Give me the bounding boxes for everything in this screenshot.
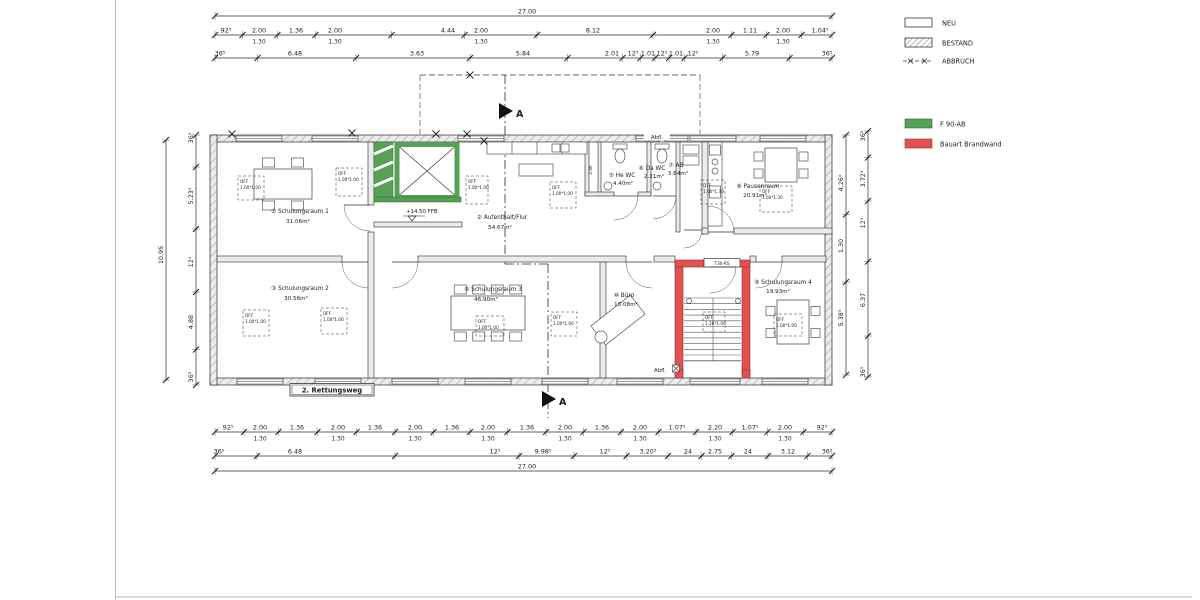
dim-label: 1.36 bbox=[445, 424, 459, 432]
table-with-chairs bbox=[451, 285, 525, 341]
dim-label: 4.44 bbox=[441, 27, 455, 35]
dim-label: 6.48 bbox=[288, 448, 302, 456]
legend-brandwand-label: Bauart Brandwand bbox=[940, 141, 1002, 149]
dim-label: 27.00 bbox=[518, 463, 536, 471]
legend-abbruch-label: ABBRUCH bbox=[942, 58, 975, 66]
legend-neu-swatch bbox=[905, 18, 932, 27]
dim-label: 2.00 bbox=[706, 27, 720, 35]
legend-abbruch-swatch bbox=[903, 59, 933, 64]
dim-label: 36⁵ bbox=[859, 366, 867, 377]
dim-label: 36⁵ bbox=[822, 50, 833, 58]
room-label-pausenraum: ⑧ Pausenraum bbox=[736, 183, 779, 190]
section-label-bottom: A bbox=[559, 397, 567, 408]
dim-label: 2.00 bbox=[558, 424, 572, 432]
dim-label: 1.11 bbox=[743, 27, 757, 35]
dim-label: 36⁵ bbox=[859, 130, 867, 141]
fire-door-label: T30-RS bbox=[714, 261, 730, 266]
off-marker-label: OFF bbox=[323, 311, 332, 316]
rettungsweg-label: 2. Rettungsweg bbox=[302, 387, 362, 395]
off-marker-size: 1.26*1.00 bbox=[705, 321, 726, 326]
dim-label: 2.00 bbox=[474, 27, 488, 35]
dim-label: 1.30 bbox=[837, 239, 845, 253]
room-area-pausenraum: 20.91m² bbox=[743, 192, 767, 199]
dim-chain-right-col1: 4.26⁵1.305.38⁵ bbox=[837, 132, 850, 378]
legend-f90-label: F 90-AB bbox=[940, 121, 966, 129]
room-label-aufenthalt: ② Aufenthalt/Flur bbox=[477, 214, 528, 221]
dim-chain-left-col1: 10.95 bbox=[157, 137, 170, 383]
dim-label: 10.95 bbox=[157, 246, 165, 264]
dim-label: 92⁵ bbox=[223, 424, 234, 432]
off-marker-size: 1.00*1.00 bbox=[245, 319, 266, 324]
off-marker-size: 1.00*1.00 bbox=[468, 185, 489, 190]
vorraum-dim: 2.06 bbox=[588, 165, 593, 175]
dim-label: 2.01 bbox=[605, 50, 619, 58]
dim-label: 5.38⁵ bbox=[837, 309, 845, 326]
off-marker-label: OFF bbox=[552, 185, 561, 190]
level-label: +14.50 FFB bbox=[406, 209, 438, 215]
room-area-schulungsraum4: 19.93m² bbox=[766, 288, 790, 295]
elevator-shaft bbox=[374, 142, 461, 202]
floor-plan-svg: A A bbox=[0, 0, 1200, 600]
dim-label: 92⁵ bbox=[221, 27, 232, 35]
section-marker-top-icon bbox=[499, 103, 513, 119]
legend-neu-label: NEU bbox=[942, 20, 956, 28]
off-marker-size: 1.00*1.00 bbox=[323, 317, 344, 322]
room-label-buero: ⑩ Büro bbox=[614, 292, 635, 299]
window bbox=[312, 136, 358, 142]
door bbox=[344, 205, 370, 231]
room-label-da-wc: ⑥ Da WC bbox=[639, 165, 666, 172]
door bbox=[684, 230, 702, 248]
drawing-sheet: A A bbox=[0, 0, 1200, 600]
dim-label: 1.36 bbox=[290, 424, 304, 432]
off-marker: OFF1.00*1.00 bbox=[550, 182, 576, 208]
kitchen-counter bbox=[487, 142, 587, 176]
off-marker-size: 1.00*1.00 bbox=[553, 321, 574, 326]
dim-label: 6.37 bbox=[859, 293, 867, 307]
dim-label: 1.36 bbox=[595, 424, 609, 432]
off-marker-label: DTF bbox=[703, 183, 712, 188]
window bbox=[236, 136, 282, 142]
room-label-he-wc: ⑤ He WC bbox=[609, 172, 636, 179]
dim-label: 3.20⁵ bbox=[640, 448, 657, 456]
off-marker: OFF1.00*1.00 bbox=[243, 310, 269, 336]
dimension-chains: 27.0092⁵2.001.301.362.001.304.442.001.30… bbox=[157, 8, 872, 476]
dim-sublabel: 1.30 bbox=[253, 436, 267, 443]
door bbox=[342, 262, 368, 288]
dim-sublabel: 1.30 bbox=[408, 436, 422, 443]
dim-chain-bottom-total: 27.00 bbox=[212, 463, 835, 476]
dim-label: 92⁵ bbox=[817, 424, 828, 432]
table-with-chairs bbox=[754, 148, 808, 182]
window bbox=[760, 136, 806, 142]
dim-label: 24 bbox=[744, 448, 752, 456]
dim-label: 12⁵ bbox=[187, 256, 195, 267]
room-label-schulungsraum2: ③ Schulungsraum 2 bbox=[271, 285, 329, 292]
room-area-da-wc: 2.21m² bbox=[644, 173, 664, 180]
dim-label: 4.88 bbox=[187, 315, 195, 329]
construction-lines: A A bbox=[420, 75, 700, 418]
dim-label: 2.00 bbox=[776, 27, 790, 35]
off-marker-size: 1.00*1.00 bbox=[240, 185, 261, 190]
dim-label: 2.00 bbox=[331, 424, 345, 432]
dim-chain-right-col2: 36⁵3.72⁵12⁵6.3736⁵ bbox=[859, 128, 872, 380]
off-marker-size: 1.00*1.00 bbox=[478, 325, 499, 330]
off-marker: OFF1.00*1.00 bbox=[551, 312, 577, 336]
off-marker-label: OFF bbox=[705, 315, 714, 320]
annotations: Abfl. Abfl. 2.06 2. Rettungsweg bbox=[290, 132, 680, 397]
section-label-top: A bbox=[516, 109, 524, 120]
dim-label: 12⁵ bbox=[657, 50, 668, 58]
dim-chain-bottom-row1: 92⁵2.001.301.362.001.301.362.001.301.362… bbox=[212, 424, 835, 443]
off-marker: OFF1.00*1.00 bbox=[321, 308, 347, 334]
dim-label: 2.00 bbox=[633, 424, 647, 432]
dim-label: 1.36 bbox=[520, 424, 534, 432]
room-area-schulungsraum1: 31.06m² bbox=[286, 218, 310, 225]
door bbox=[614, 196, 638, 220]
dim-label: 4.26⁵ bbox=[837, 174, 845, 191]
off-marker-size: 1.00*1.00 bbox=[776, 323, 797, 328]
dim-chain-top-row2: 36⁵6.483.635.842.0112⁵1.0112⁵1.0112⁵5.79… bbox=[212, 50, 835, 63]
off-marker-label: OFF bbox=[776, 317, 785, 322]
off-marker: OFF1.00*1.00 bbox=[466, 176, 489, 204]
dim-label: 2.00 bbox=[408, 424, 422, 432]
dim-sublabel: 1.30 bbox=[252, 39, 266, 46]
dim-label: 36⁵ bbox=[822, 448, 833, 456]
off-marker-size: 1.00*1.00 bbox=[552, 191, 573, 196]
dim-label: 2.00 bbox=[328, 27, 342, 35]
legend-brandwand-swatch bbox=[905, 139, 932, 148]
window bbox=[465, 379, 511, 385]
dim-label: 5.84 bbox=[516, 50, 530, 58]
dim-sublabel: 1.30 bbox=[331, 436, 345, 443]
dim-sublabel: 1.30 bbox=[776, 39, 790, 46]
section-marker-bottom-icon bbox=[542, 391, 556, 407]
off-marker-label: OFF bbox=[478, 319, 487, 324]
dim-label: 12⁵ bbox=[859, 217, 867, 228]
dim-sublabel: 1.30 bbox=[558, 436, 572, 443]
off-marker-size: 1.00*1.00 bbox=[338, 177, 359, 182]
dim-label: 3.63 bbox=[410, 50, 424, 58]
off-marker-size: 1.00*1.30 bbox=[703, 189, 724, 194]
dim-label: 2.00 bbox=[481, 424, 495, 432]
legend-bestand-swatch bbox=[905, 38, 932, 47]
dim-label: 27.00 bbox=[518, 8, 536, 16]
dim-chain-top-row1: 92⁵2.001.301.362.001.304.442.001.308.122… bbox=[212, 27, 835, 46]
door bbox=[392, 262, 418, 288]
dim-label: 2.00 bbox=[252, 27, 266, 35]
room-labels: ① Schulungsraum 1 31.06m² ② Aufenthalt/F… bbox=[271, 162, 812, 308]
window bbox=[690, 136, 736, 142]
dim-label: 1.07⁵ bbox=[669, 424, 686, 432]
room-label-schulungsraum4: ⑨ Schulungsraum 4 bbox=[754, 279, 812, 286]
room-area-ab: 3.64m² bbox=[668, 170, 688, 177]
dim-label: 2.75 bbox=[708, 448, 722, 456]
dim-label: 9.98⁵ bbox=[535, 448, 552, 456]
table-with-chairs bbox=[254, 158, 312, 210]
abfl-top-label: Abfl. bbox=[651, 135, 664, 141]
dim-chain-top-total: 27.00 bbox=[212, 8, 835, 21]
dim-label: 3.12 bbox=[781, 448, 795, 456]
dim-sublabel: 1.30 bbox=[481, 436, 495, 443]
dim-sublabel: 1.30 bbox=[633, 436, 647, 443]
room-label-schulungsraum1: ① Schulungsraum 1 bbox=[271, 208, 329, 215]
window bbox=[762, 379, 808, 385]
off-marker-label: OFF bbox=[245, 313, 254, 318]
dim-label: 12⁵ bbox=[600, 448, 611, 456]
room-label-schulungsraum3: ④ Schulungsraum 3 bbox=[464, 286, 522, 293]
dim-label: 1.04⁵ bbox=[812, 27, 829, 35]
dim-sublabel: 1.30 bbox=[474, 39, 488, 46]
abfl-bottom-label: Abfl. bbox=[654, 368, 667, 374]
dim-label: 36⁵ bbox=[187, 371, 195, 382]
dim-label: 1.36 bbox=[289, 27, 303, 35]
off-marker-label: OFF bbox=[468, 179, 477, 184]
dim-chain-left-col2: 36⁵5.23⁵12⁵4.8836⁵ bbox=[187, 132, 200, 388]
dim-label: 5.79 bbox=[745, 50, 759, 58]
sheet-frame bbox=[116, 0, 1193, 600]
door bbox=[626, 262, 652, 288]
room-area-buero: 15.08m² bbox=[614, 301, 638, 308]
dim-label: 12⁵ bbox=[688, 50, 699, 58]
room-label-ab: ⑦ AB bbox=[669, 162, 684, 169]
dim-label: 8.12 bbox=[586, 27, 600, 35]
abbruch-marks bbox=[229, 72, 488, 145]
off-marker-label: OFF bbox=[553, 315, 562, 320]
off-marker-label: OFF bbox=[338, 171, 347, 176]
dim-label: 2.00 bbox=[253, 424, 267, 432]
window bbox=[617, 379, 663, 385]
dim-label: 12⁵ bbox=[490, 448, 501, 456]
door bbox=[653, 196, 676, 219]
dim-chain-bottom-row2: 36⁵6.4812⁵9.98⁵12⁵3.20⁵242.75243.1236⁵ bbox=[212, 448, 835, 461]
dim-sublabel: 1.30 bbox=[708, 436, 722, 443]
dim-label: 2.00 bbox=[778, 424, 792, 432]
room-area-schulungsraum2: 30.56m² bbox=[284, 295, 308, 302]
dim-sublabel: 1.30 bbox=[778, 436, 792, 443]
window bbox=[392, 379, 438, 385]
dim-label: 1.36 bbox=[368, 424, 382, 432]
dim-sublabel: 1.30 bbox=[706, 39, 720, 46]
dim-label: 36⁵ bbox=[214, 448, 225, 456]
window bbox=[542, 379, 588, 385]
dim-label: 2.20 bbox=[708, 424, 722, 432]
dim-label: 5.23⁵ bbox=[187, 187, 195, 204]
off-marker-label: OFF bbox=[240, 179, 249, 184]
dim-label: 3.72⁵ bbox=[859, 170, 867, 187]
window bbox=[690, 379, 740, 385]
dim-label: 6.48 bbox=[288, 50, 302, 58]
dim-sublabel: 1.30 bbox=[328, 39, 342, 46]
window bbox=[237, 379, 283, 385]
legend: NEU BESTAND ABBRUCH F 90-AB Bauart Brand… bbox=[903, 18, 1002, 149]
off-marker: OFF1.00*1.00 bbox=[336, 168, 362, 196]
dim-label: 1.07⁵ bbox=[742, 424, 759, 432]
door bbox=[710, 267, 736, 293]
dim-label: 36⁵ bbox=[215, 50, 226, 58]
room-area-aufenthalt: 54.67m² bbox=[488, 224, 512, 231]
dim-label: 24 bbox=[684, 448, 692, 456]
legend-bestand-label: BESTAND bbox=[942, 40, 973, 48]
dim-label: 12⁵ bbox=[628, 50, 639, 58]
room-area-schulungsraum3: 46.90m² bbox=[474, 296, 498, 303]
room-area-he-wc: 4.40m² bbox=[613, 180, 633, 187]
legend-f90-swatch bbox=[905, 119, 932, 128]
dim-label: 36⁵ bbox=[187, 132, 195, 143]
dim-label: 1.01 bbox=[669, 50, 683, 58]
level-marker: +14.50 FFB bbox=[403, 209, 438, 221]
dim-label: 1.01 bbox=[641, 50, 655, 58]
